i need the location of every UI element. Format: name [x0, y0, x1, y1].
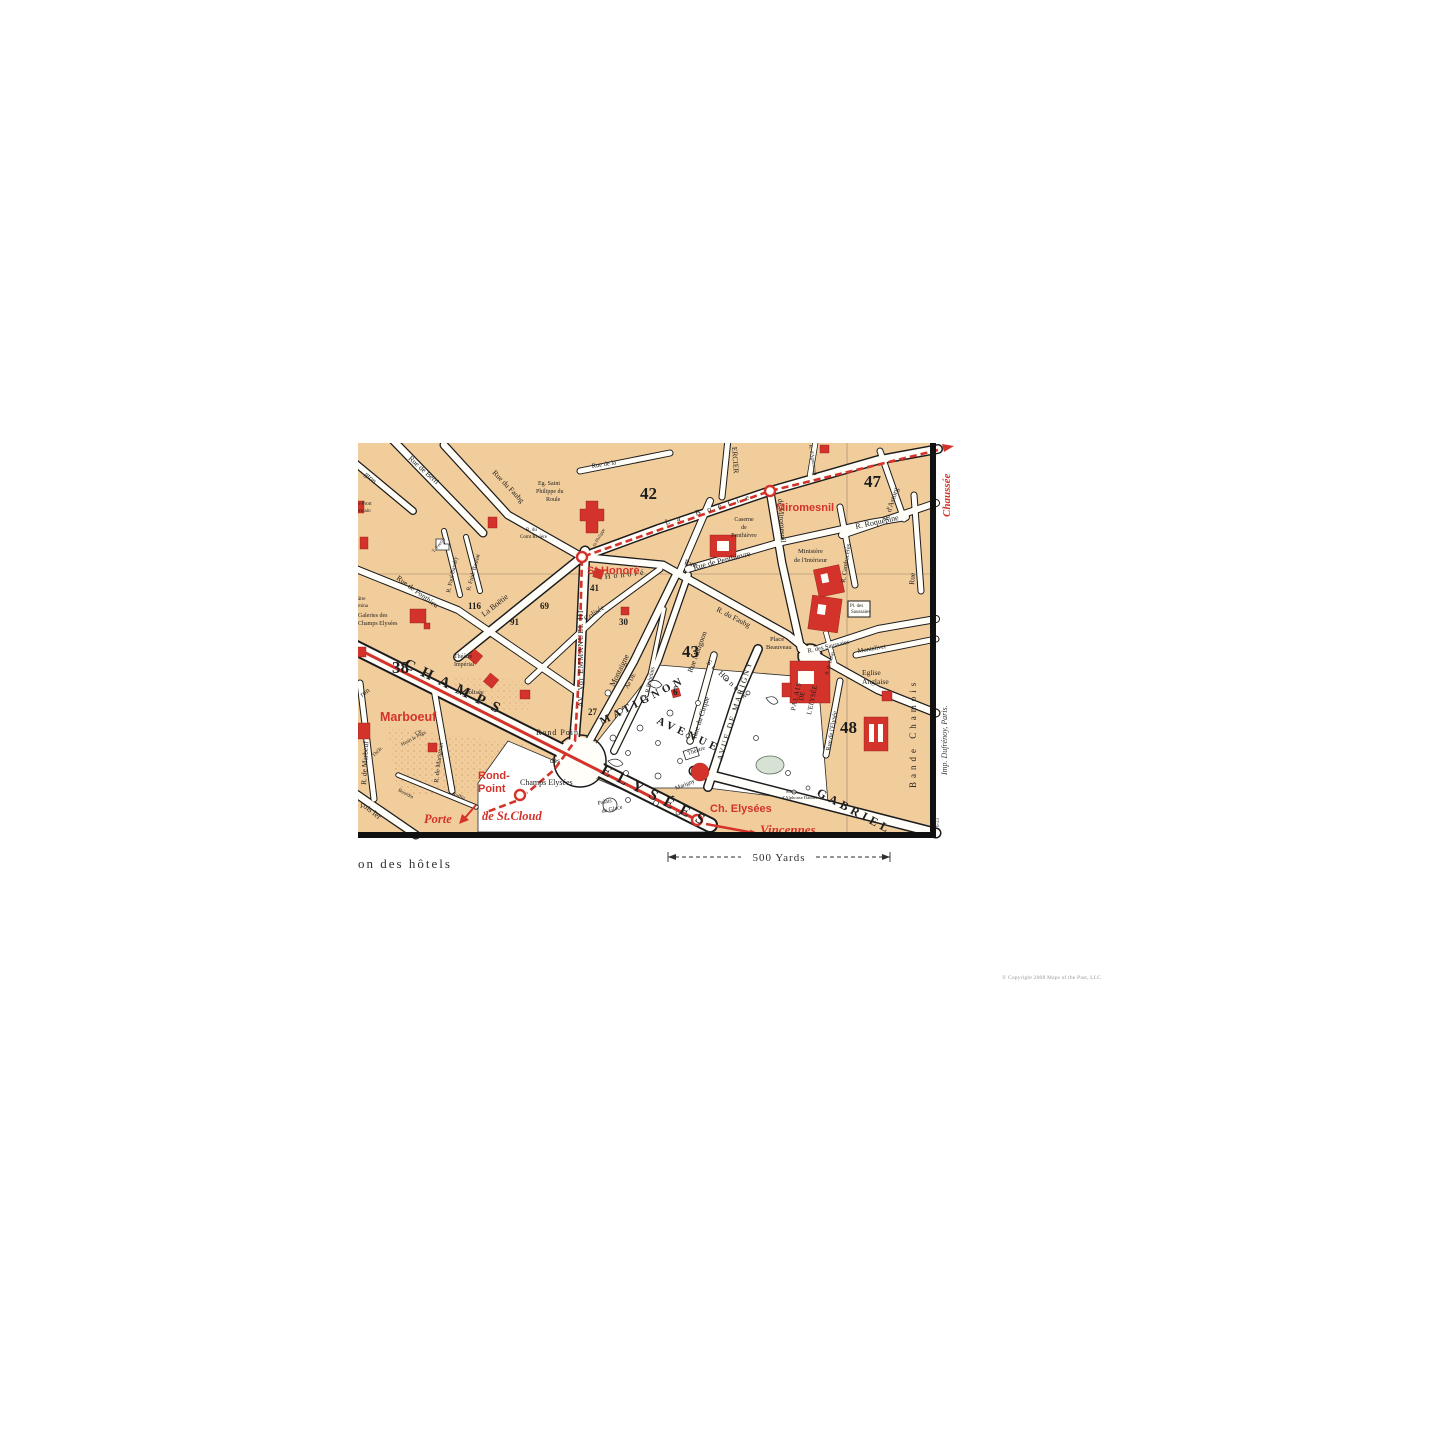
paris-map-sheet: CHAMPS ELYSÉES AVENUE MATIGNON GABRIEL 3…: [358, 443, 958, 873]
svg-text:Impérial: Impérial: [454, 662, 475, 668]
printer-credit: Imp. Dufrénoy, Paris.: [940, 705, 949, 776]
label-rue-v: Rue: [907, 572, 917, 585]
page: { "page": { "copyright": "© Copyright 20…: [0, 0, 1445, 1445]
svg-text:6: 6: [673, 687, 678, 697]
copyright-line: © Copyright 2008 Maps of the Past, LLC: [1002, 975, 1101, 981]
scale-label: 500 Yards: [752, 852, 805, 864]
hotels-caption: on des hôtels: [358, 856, 452, 871]
svg-text:Statue: Statue: [786, 789, 797, 794]
label-rond-point-station-2: Point: [478, 783, 506, 795]
svg-text:27: 27: [588, 707, 598, 717]
galeries-building: [410, 609, 426, 623]
svg-text:R. du: R. du: [526, 528, 537, 533]
label-chaussee: Chaussée: [941, 473, 953, 517]
label-champs-pl: Champs Elysées: [520, 778, 573, 787]
svg-text:69: 69: [540, 601, 550, 611]
block-48: 48: [840, 718, 857, 737]
block-47: 47: [864, 472, 882, 491]
svg-text:Penthièvre: Penthièvre: [731, 533, 757, 539]
svg-text:Beauveau: Beauveau: [766, 644, 792, 651]
svg-text:Eg. Saint: Eg. Saint: [538, 481, 560, 487]
svg-text:Place: Place: [770, 636, 784, 643]
map-footer: on des hôtels 500 Yards: [358, 852, 890, 871]
elysee-basin: [756, 756, 784, 774]
svg-text:30: 30: [619, 617, 629, 627]
label-rond-point-pl: Rond Point: [536, 728, 582, 737]
label-st-cloud: de St.Cloud: [482, 809, 542, 823]
svg-text:le Prott: le Prott: [358, 502, 372, 507]
svg-text:Roule: Roule: [546, 497, 561, 503]
svg-text:41: 41: [590, 583, 600, 593]
label-av-emmanuel: AV. Vor EMMANUEL III: [576, 609, 585, 707]
label-le-colisee: le Colisée: [458, 689, 484, 696]
scale-arrow-left-icon: [668, 854, 676, 860]
svg-text:Anglaise: Anglaise: [862, 677, 889, 686]
svg-text:Caserne: Caserne: [734, 517, 754, 523]
station-rond-point-icon: [515, 790, 525, 800]
svg-text:Eglise: Eglise: [862, 668, 881, 677]
plate-number: 6-23: [936, 817, 941, 827]
svg-text:Champs Elysées: Champs Elysées: [358, 621, 398, 627]
faubourg-building-lower-right: [864, 717, 888, 751]
theatre-marigny-dot: [691, 763, 709, 781]
svg-text:de: de: [741, 525, 747, 531]
svg-text:mina: mina: [358, 604, 369, 609]
svg-text:Saussaies: Saussaies: [851, 610, 870, 615]
block-42: 42: [640, 484, 657, 503]
svg-text:d'Alphonse Daudet: d'Alphonse Daudet: [782, 795, 818, 800]
label-ch-elysees-station: Ch. Elysées: [710, 803, 772, 815]
svg-text:des: des: [550, 756, 560, 765]
block-38: 38: [392, 658, 409, 677]
label-bande-chamois: Bande Chamois: [908, 679, 918, 788]
station-st-honore-icon: [577, 552, 587, 562]
chaussee-arrowhead-icon: [942, 444, 954, 452]
map-canvas: CHAMPS ELYSÉES AVENUE MATIGNON GABRIEL 3…: [358, 443, 958, 873]
svg-text:éricain: éricain: [358, 509, 371, 514]
label-rond-point-station-1: Rond-: [478, 770, 510, 782]
scale-arrow-right-icon: [882, 854, 890, 860]
label-porte: Porte: [424, 812, 452, 826]
label-st-honore-station: St.Honoré: [587, 565, 640, 577]
margin-annotations: Imp. Dufrénoy, Paris. 6-23: [936, 705, 949, 827]
label-mercier: ERCIER: [730, 447, 741, 474]
svg-text:Théâtre: Théâtre: [454, 654, 473, 660]
svg-text:de l'Intérieur: de l'Intérieur: [794, 557, 828, 564]
svg-text:Comt Rivière: Comt Rivière: [520, 535, 548, 540]
svg-text:âtre: âtre: [358, 597, 366, 602]
svg-text:Galeries des: Galeries des: [358, 613, 388, 619]
label-marboeuf-station: Marboeuf: [380, 710, 437, 724]
svg-text:116: 116: [468, 601, 482, 611]
label-miromesnil-station: Miromesnil: [776, 502, 834, 514]
svg-text:Pl. des: Pl. des: [850, 604, 863, 609]
svg-text:Philippe du: Philippe du: [536, 489, 564, 495]
station-miromesnil-icon: [765, 486, 775, 496]
svg-text:Ministère: Ministère: [798, 548, 823, 555]
svg-text:91: 91: [510, 617, 520, 627]
